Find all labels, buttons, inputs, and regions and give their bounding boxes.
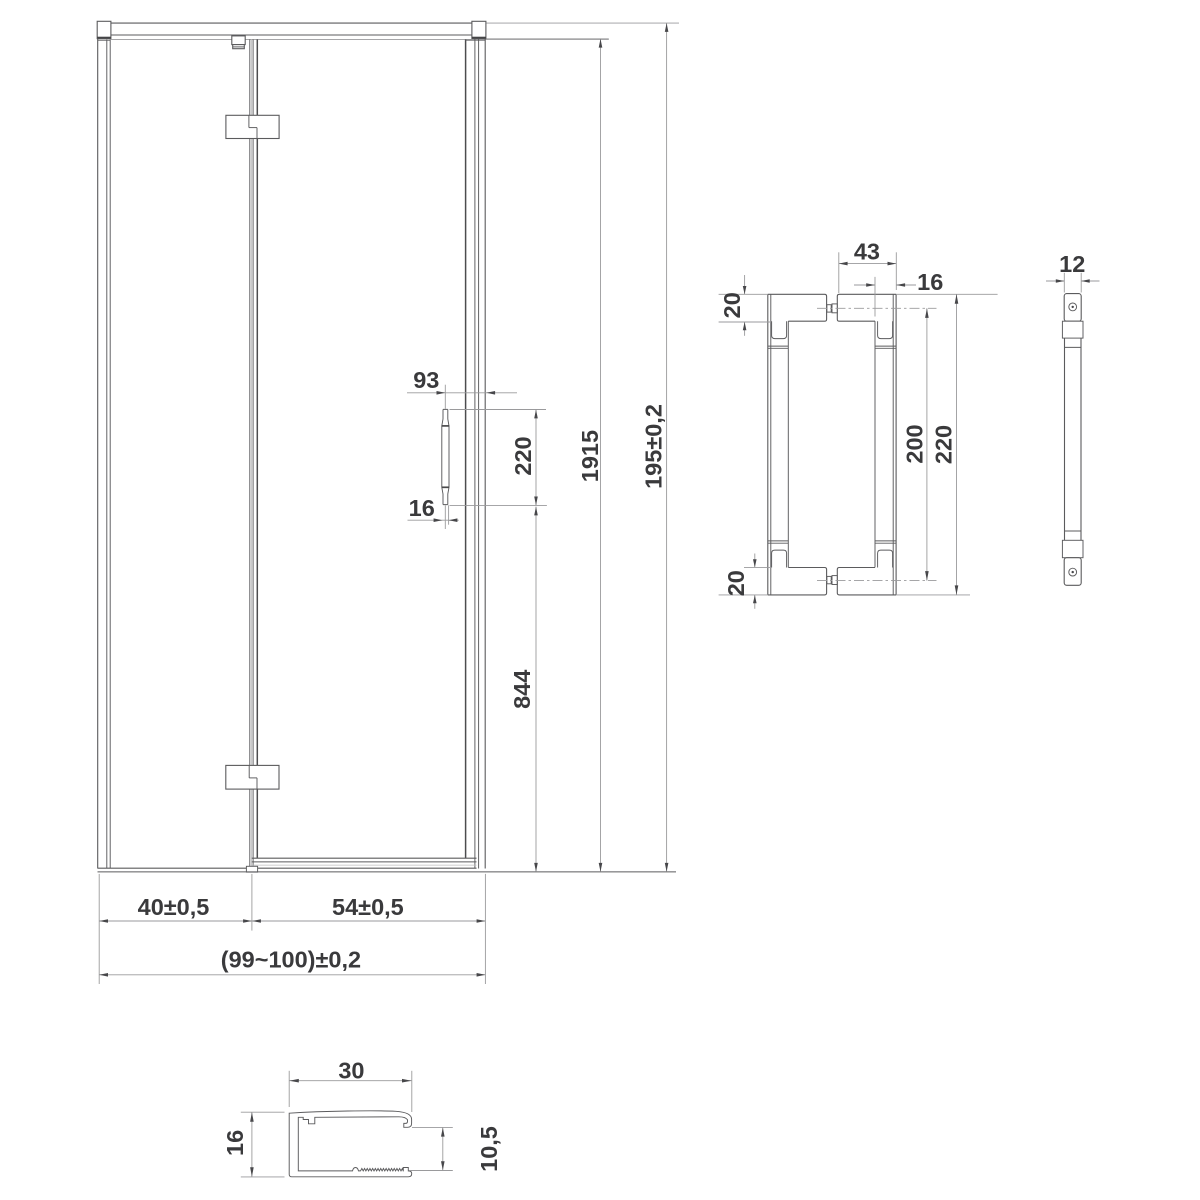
svg-text:16: 16: [409, 495, 435, 521]
svg-text:220: 220: [931, 425, 957, 464]
svg-text:12: 12: [1059, 251, 1085, 277]
svg-text:30: 30: [338, 1057, 364, 1083]
svg-text:10,5: 10,5: [476, 1126, 502, 1172]
svg-text:54±0,5: 54±0,5: [332, 894, 404, 920]
svg-text:16: 16: [917, 269, 943, 295]
svg-text:93: 93: [413, 367, 439, 393]
svg-text:20: 20: [719, 292, 745, 318]
svg-text:20: 20: [723, 570, 749, 596]
svg-text:(99~100)±0,2: (99~100)±0,2: [221, 946, 361, 972]
svg-text:195±0,2: 195±0,2: [641, 404, 667, 489]
svg-text:200: 200: [901, 424, 927, 463]
svg-text:40±0,5: 40±0,5: [138, 894, 210, 920]
svg-text:220: 220: [510, 436, 536, 475]
svg-text:1915: 1915: [577, 430, 603, 482]
svg-text:16: 16: [222, 1130, 248, 1156]
svg-text:844: 844: [509, 670, 535, 709]
svg-text:43: 43: [854, 239, 880, 265]
